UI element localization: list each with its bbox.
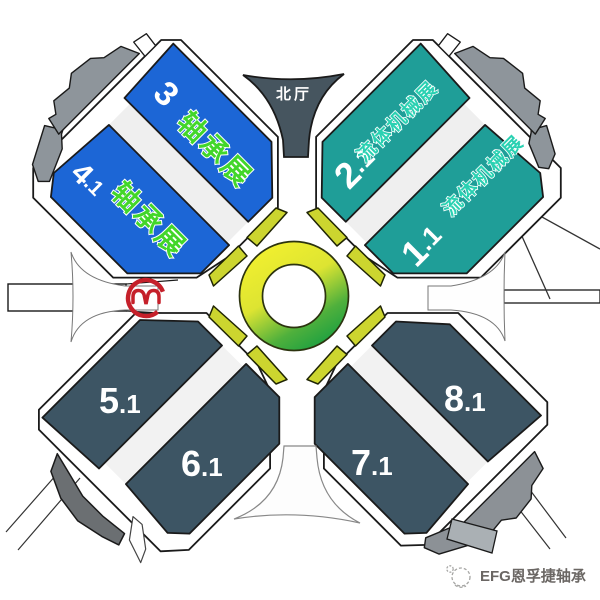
svg-text:北厅: 北厅: [276, 86, 312, 103]
svg-text:EFG恩孚捷轴承: EFG恩孚捷轴承: [480, 567, 586, 585]
